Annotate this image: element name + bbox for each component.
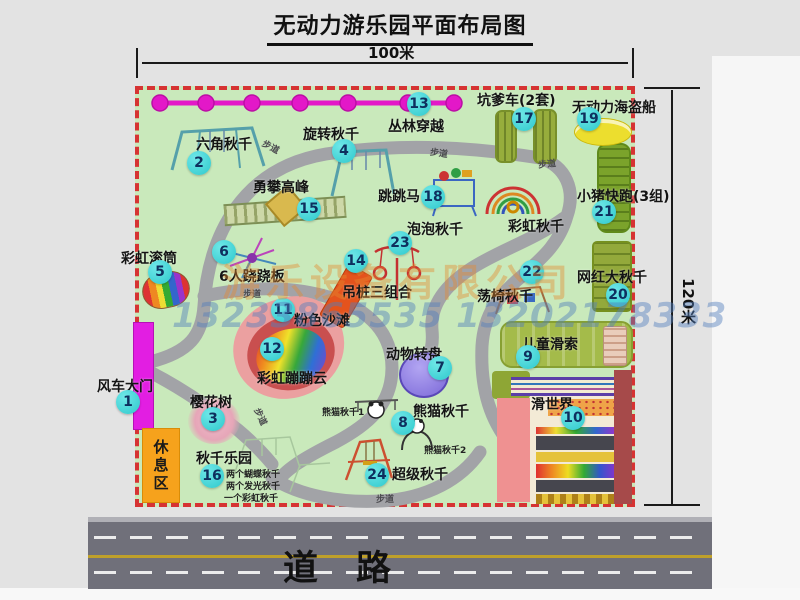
badge-24: 24 <box>365 463 389 487</box>
label-jungle-crossing: 丛林穿越 <box>388 116 444 136</box>
slide-world-band-yellow-1 <box>536 452 616 462</box>
label-hexagon-swing: 六角秋千 <box>196 134 252 154</box>
badge-2: 2 <box>187 151 211 175</box>
slide-world-pink-slab <box>497 398 531 502</box>
slide-world-band-rainbow <box>536 464 616 478</box>
watermark-phone: 13233865535 13202178333 <box>172 296 727 336</box>
badge-7: 7 <box>428 356 452 380</box>
badge-9: 9 <box>516 345 540 369</box>
road-lane-dash-top <box>94 536 704 539</box>
width-dimension-label: 100米 <box>368 42 414 63</box>
label-climbing-peak: 勇攀高峰 <box>253 177 309 197</box>
badge-10: 10 <box>561 406 585 430</box>
label-panda-swing-1: 熊猫秋千1 <box>322 405 364 418</box>
badge-17: 17 <box>512 107 536 131</box>
footpath-label-2: 步道 <box>429 145 449 160</box>
badge-16: 16 <box>200 464 224 488</box>
label-panda-swing: 熊猫秋千 <box>413 401 469 421</box>
label-rainbow-cloud: 彩虹蹦蹦云 <box>257 368 327 388</box>
badge-15: 15 <box>297 197 321 221</box>
width-dim-tick-right <box>632 48 634 78</box>
slide-world-right-bar <box>614 370 632 504</box>
footpath-label-3: 步道 <box>537 156 556 171</box>
slide-world-band-wavy <box>536 494 616 504</box>
label-super-swing: 超级秋千 <box>392 464 448 484</box>
label-kart: 坑爹车(2套) <box>477 90 556 110</box>
badge-3: 3 <box>201 407 225 431</box>
rest-area-label: 休息区 <box>151 439 172 493</box>
badge-4: 4 <box>332 139 356 163</box>
badge-13: 13 <box>407 92 431 116</box>
rest-area-shape: 休息区 <box>142 428 180 503</box>
slide-world-band-dark-2 <box>536 480 616 492</box>
park-plan-page: 无动力游乐园平面布局图 100米 120米 <box>0 0 800 600</box>
label-rainbow-swing-arcs: 彩虹秋千 <box>508 216 564 236</box>
label-jump-horse: 跳跳马 <box>378 186 420 206</box>
page-title-text: 无动力游乐园平面布局图 <box>267 8 532 46</box>
label-pig-run: 小猪快跑(3组) <box>577 186 670 206</box>
page-title: 无动力游乐园平面布局图 <box>0 8 800 46</box>
badge-19: 19 <box>577 107 601 131</box>
swing-park-note-3: 一个彩虹秋千 <box>224 491 278 504</box>
badge-5: 5 <box>148 260 172 284</box>
label-panda-swing-2: 熊猫秋千2 <box>424 443 466 456</box>
badge-8: 8 <box>391 411 415 435</box>
badge-18: 18 <box>421 185 445 209</box>
road-label: 道路 <box>283 540 429 591</box>
badge-12: 12 <box>260 337 284 361</box>
height-dim-tick-bottom <box>644 504 700 506</box>
badge-21: 21 <box>592 200 616 224</box>
label-bubble-swing: 泡泡秋千 <box>407 219 463 239</box>
road: 道路 <box>88 517 712 589</box>
slide-world-band-dark-1 <box>536 436 616 450</box>
height-dim-tick-top <box>644 87 700 89</box>
width-dim-tick-left <box>136 48 138 78</box>
footpath-label-6: 步道 <box>376 492 394 505</box>
badge-1: 1 <box>116 390 140 414</box>
